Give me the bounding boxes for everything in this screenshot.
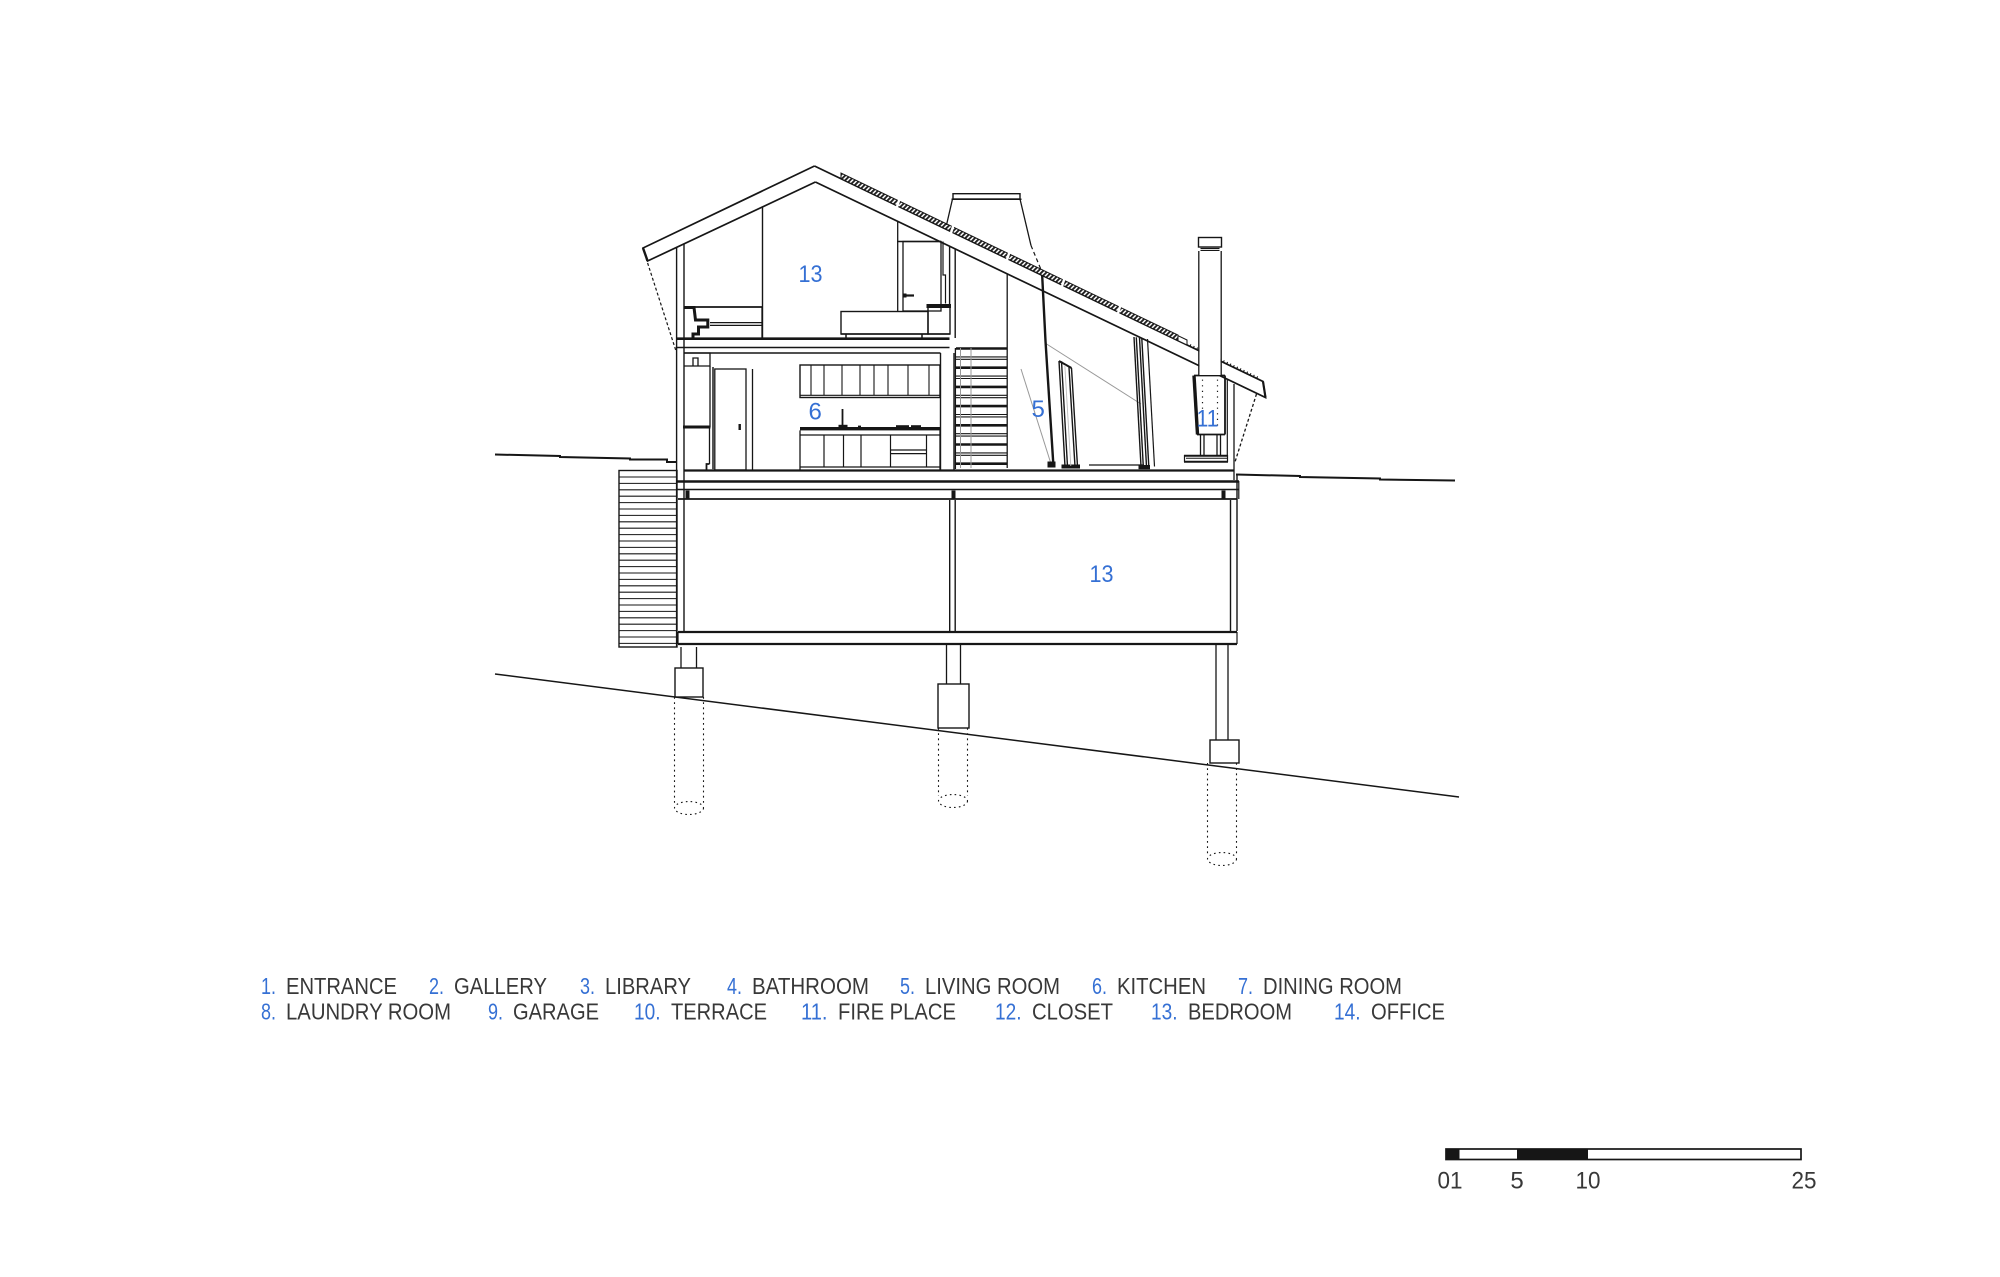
svg-text:LAUNDRY ROOM: LAUNDRY ROOM: [286, 998, 451, 1024]
svg-text:12.: 12.: [995, 998, 1022, 1024]
svg-text:13: 13: [799, 261, 823, 288]
svg-text:5.: 5.: [900, 973, 915, 999]
svg-text:LIVING ROOM: LIVING ROOM: [925, 973, 1060, 999]
svg-text:01: 01: [1438, 1168, 1463, 1195]
svg-text:10: 10: [1576, 1168, 1601, 1195]
svg-text:FIRE PLACE: FIRE PLACE: [838, 998, 956, 1024]
svg-text:7.: 7.: [1238, 973, 1253, 999]
svg-text:GALLERY: GALLERY: [454, 973, 547, 999]
svg-text:13: 13: [1090, 561, 1114, 588]
svg-text:11.: 11.: [801, 998, 828, 1024]
svg-text:ENTRANCE: ENTRANCE: [286, 973, 397, 999]
svg-text:DINING ROOM: DINING ROOM: [1263, 973, 1402, 999]
svg-text:4.: 4.: [727, 973, 742, 999]
svg-text:GARAGE: GARAGE: [513, 998, 599, 1024]
svg-text:TERRACE: TERRACE: [671, 998, 767, 1024]
svg-text:LIBRARY: LIBRARY: [605, 973, 691, 999]
svg-text:11: 11: [1197, 406, 1219, 433]
svg-text:2.: 2.: [429, 973, 444, 999]
svg-text:BEDROOM: BEDROOM: [1188, 998, 1292, 1024]
svg-text:25: 25: [1792, 1168, 1817, 1195]
svg-text:OFFICE: OFFICE: [1371, 998, 1445, 1024]
svg-text:KITCHEN: KITCHEN: [1117, 973, 1206, 999]
svg-text:6: 6: [809, 399, 822, 426]
svg-text:1.: 1.: [261, 973, 276, 999]
svg-text:CLOSET: CLOSET: [1032, 998, 1113, 1024]
svg-text:8.: 8.: [261, 998, 276, 1024]
svg-text:5: 5: [1032, 396, 1045, 423]
svg-text:6.: 6.: [1092, 973, 1107, 999]
svg-text:14.: 14.: [1334, 998, 1361, 1024]
svg-text:3.: 3.: [580, 973, 595, 999]
svg-text:9.: 9.: [488, 998, 503, 1024]
svg-text:BATHROOM: BATHROOM: [752, 973, 869, 999]
svg-text:10.: 10.: [634, 998, 661, 1024]
svg-text:5: 5: [1510, 1168, 1523, 1195]
svg-text:13.: 13.: [1151, 998, 1178, 1024]
